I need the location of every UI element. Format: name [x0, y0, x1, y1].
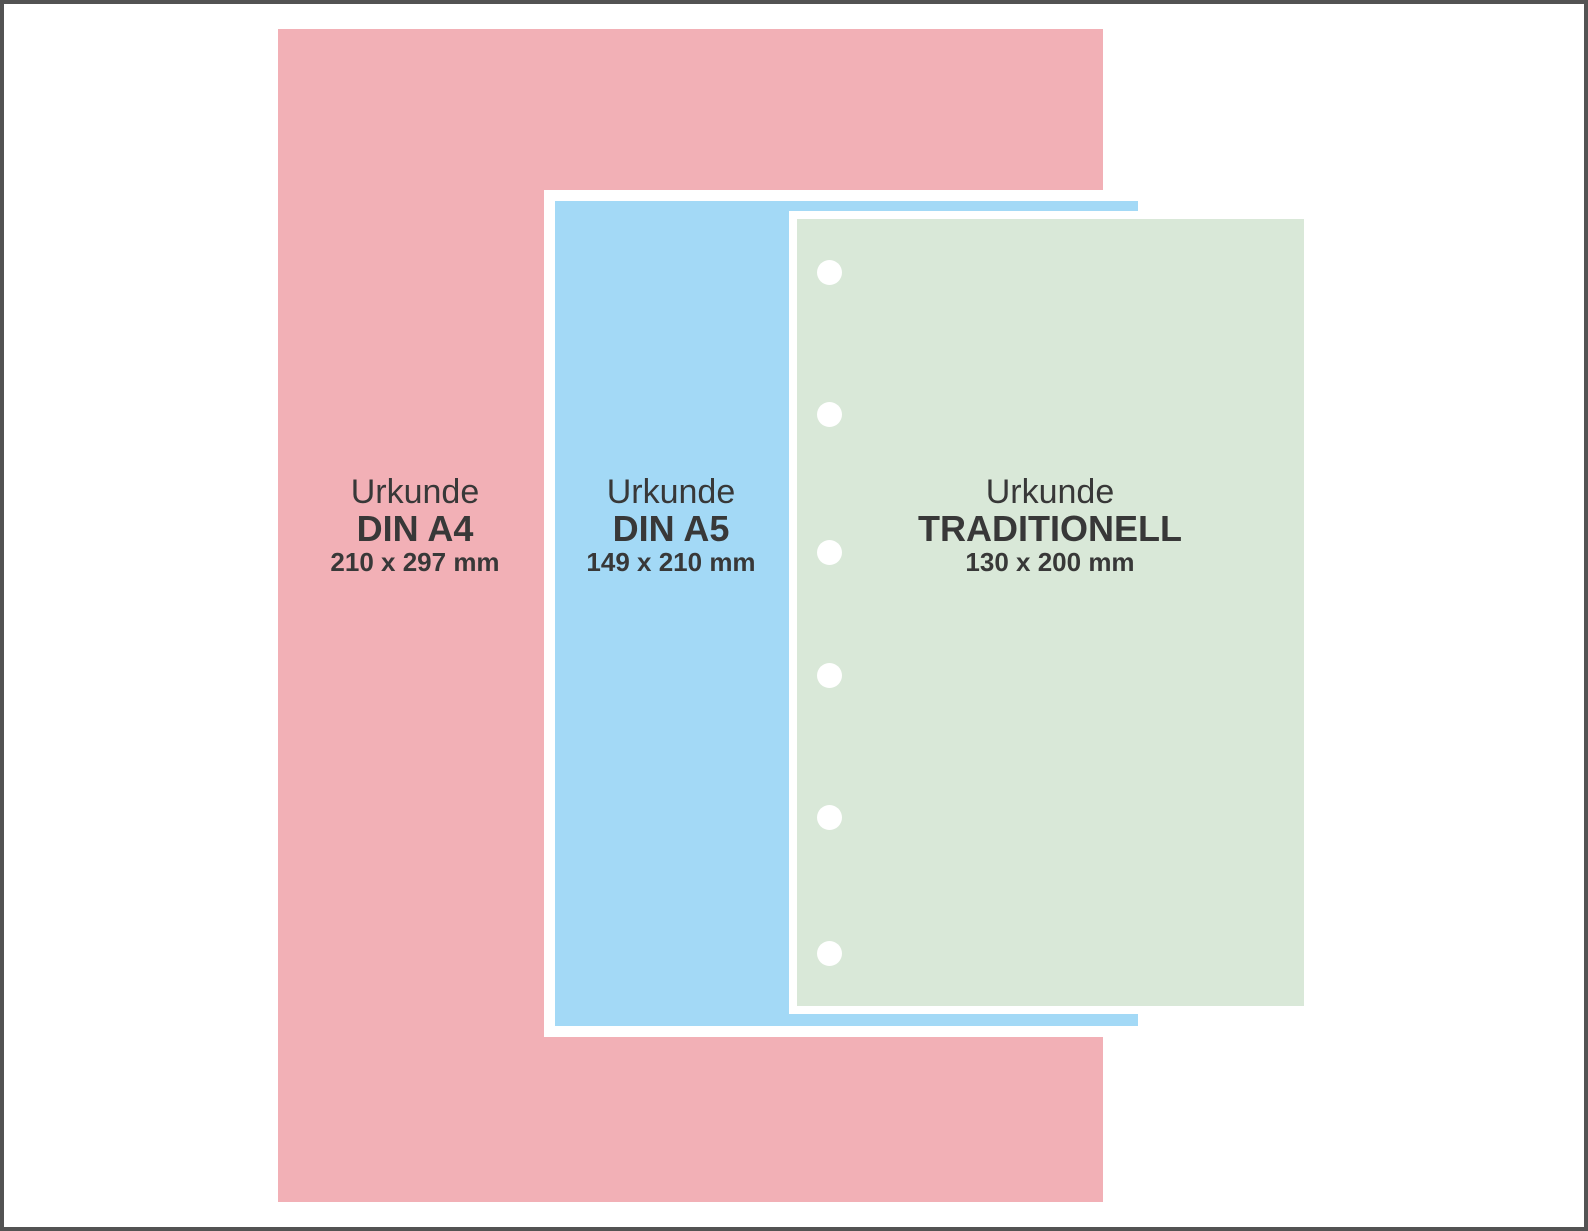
sheet-format-text: TRADITIONELL: [890, 510, 1210, 547]
sheet-kind-text: Urkunde: [511, 474, 831, 510]
sheet-format-text: DIN A5: [511, 510, 831, 547]
punch-hole-icon: [817, 260, 842, 285]
punch-hole-icon: [817, 402, 842, 427]
punch-hole-icon: [817, 805, 842, 830]
size-comparison-diagram: Urkunde DIN A4 210 x 297 mm Urkunde DIN …: [0, 0, 1588, 1231]
label-din-a5: Urkunde DIN A5 149 x 210 mm: [511, 474, 831, 577]
punch-hole-icon: [817, 663, 842, 688]
label-traditionell: Urkunde TRADITIONELL 130 x 200 mm: [890, 474, 1210, 577]
sheet-dimensions-text: 130 x 200 mm: [890, 547, 1210, 577]
sheet-dimensions-text: 149 x 210 mm: [511, 547, 831, 577]
sheet-kind-text: Urkunde: [890, 474, 1210, 510]
sheet-traditionell: [789, 211, 1312, 1014]
punch-hole-icon: [817, 941, 842, 966]
